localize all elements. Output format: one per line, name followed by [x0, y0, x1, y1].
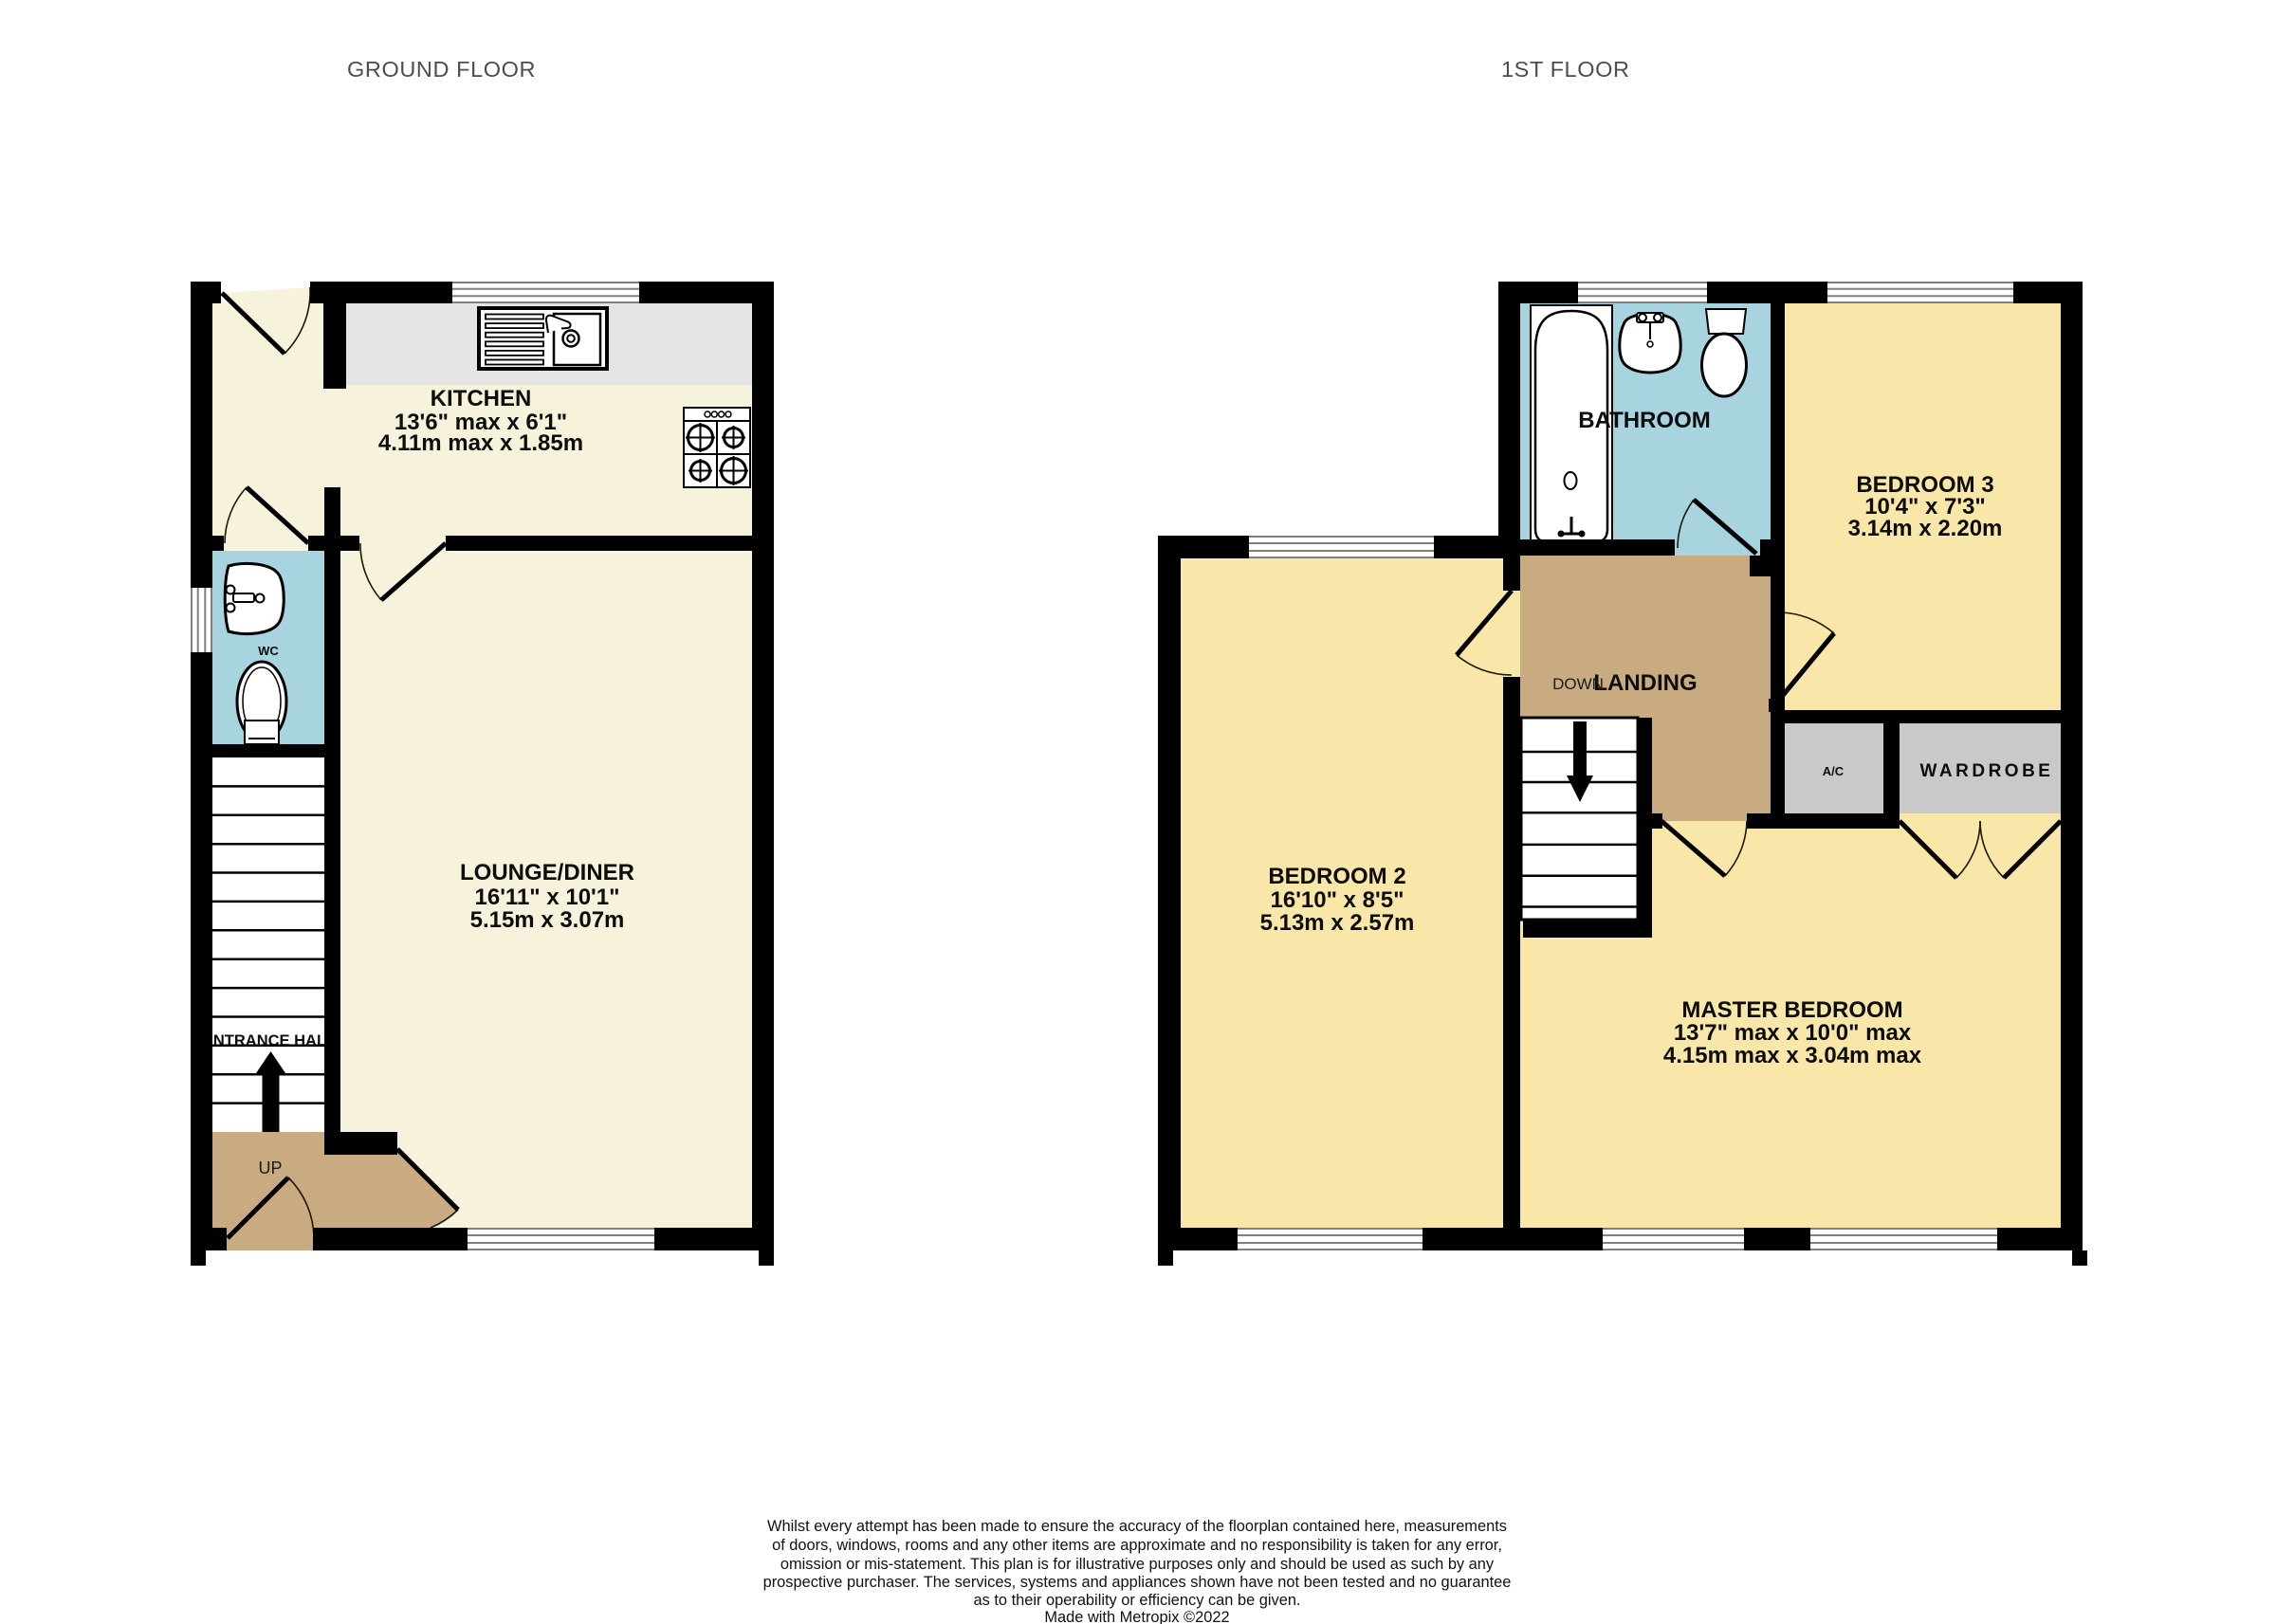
svg-text:A/C: A/C: [1823, 764, 1845, 778]
svg-text:13'7" max x 10'0" max: 13'7" max x 10'0" max: [1674, 1020, 1912, 1046]
svg-text:5.13m x 2.57m: 5.13m x 2.57m: [1260, 910, 1415, 936]
svg-text:1ST FLOOR: 1ST FLOOR: [1501, 57, 1630, 82]
svg-text:BATHROOM: BATHROOM: [1578, 408, 1711, 433]
svg-text:Whilst every attempt has been: Whilst every attempt has been made to en…: [767, 1518, 1507, 1535]
svg-text:ENTRANCE HALL: ENTRANCE HALL: [203, 1032, 336, 1049]
svg-text:WARDROBE: WARDROBE: [1920, 761, 2054, 781]
svg-text:GROUND FLOOR: GROUND FLOOR: [347, 57, 536, 82]
svg-text:16'10" x 8'5": 16'10" x 8'5": [1271, 887, 1404, 913]
svg-text:prospective purchaser. The ser: prospective purchaser. The services, sys…: [763, 1574, 1512, 1591]
svg-text:16'11" x 10'1": 16'11" x 10'1": [475, 885, 620, 910]
svg-text:4.11m max x 1.85m: 4.11m max x 1.85m: [378, 430, 583, 456]
svg-text:omission or mis-statement. Thi: omission or mis-statement. This plan is …: [780, 1556, 1495, 1573]
svg-text:UP: UP: [258, 1159, 282, 1177]
svg-text:MASTER BEDROOM: MASTER BEDROOM: [1681, 997, 1902, 1023]
svg-text:LOUNGE/DINER: LOUNGE/DINER: [460, 860, 634, 885]
svg-text:KITCHEN: KITCHEN: [431, 386, 532, 411]
svg-text:Made with Metropix ©2022: Made with Metropix ©2022: [1044, 1609, 1229, 1624]
svg-text:LANDING: LANDING: [1593, 670, 1697, 696]
svg-text:4.15m max x 3.04m max: 4.15m max x 3.04m max: [1663, 1043, 1922, 1068]
svg-text:as to their operability or eff: as to their operability or efficiency ca…: [973, 1592, 1300, 1609]
svg-text:WC: WC: [258, 644, 279, 658]
svg-text:5.15m x 3.07m: 5.15m x 3.07m: [470, 907, 625, 933]
svg-text:DOWN: DOWN: [1552, 675, 1604, 693]
svg-text:of doors, windows, rooms and a: of doors, windows, rooms and any other i…: [772, 1537, 1502, 1554]
svg-text:3.14m x 2.20m: 3.14m x 2.20m: [1848, 516, 2003, 541]
svg-text:BEDROOM 2: BEDROOM 2: [1268, 864, 1405, 889]
